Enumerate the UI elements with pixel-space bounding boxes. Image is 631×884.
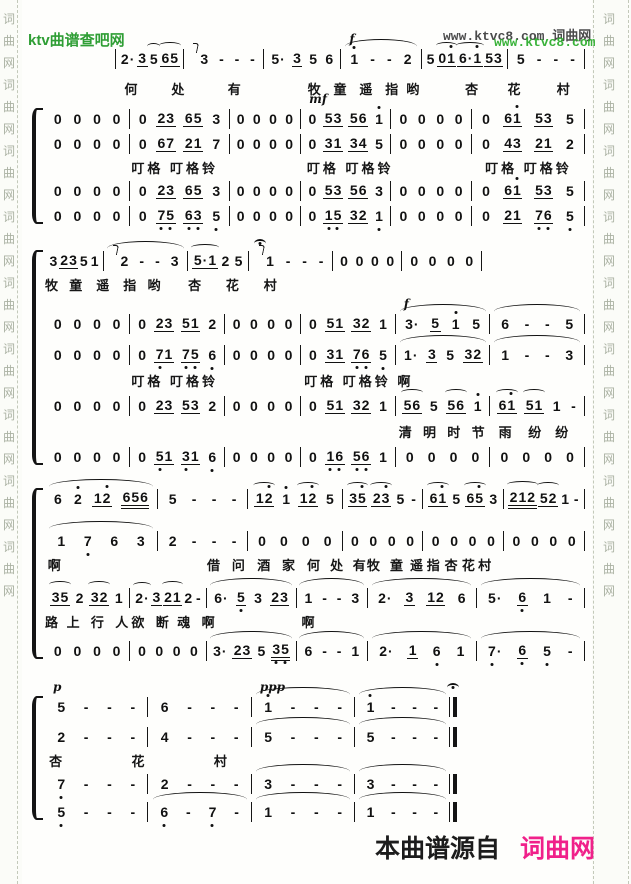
- note-char: 5: [281, 641, 290, 657]
- octave-dot-below: [521, 662, 524, 665]
- note-char: -: [186, 804, 192, 820]
- note-token: 5: [378, 347, 389, 363]
- note-char: 3: [280, 589, 289, 605]
- note-token: 0: [349, 533, 360, 549]
- note-token: 0: [251, 111, 262, 127]
- note-char: 3: [349, 490, 358, 506]
- note-char: 1: [333, 135, 342, 151]
- measure: 053563: [301, 181, 391, 201]
- measure: 5016·153: [422, 49, 508, 69]
- note-char: 5: [475, 490, 484, 506]
- lyric-syllable: 明: [423, 422, 439, 441]
- note-char: 0: [112, 398, 121, 414]
- note-char: 0: [431, 533, 440, 549]
- note-token: 3: [350, 590, 361, 606]
- note-token: 6: [456, 590, 467, 606]
- note-token: 3: [365, 776, 376, 792]
- note-char: 1: [193, 135, 202, 151]
- note-char: 6: [518, 589, 527, 605]
- note-token: -: [210, 533, 218, 549]
- final-barline: [453, 727, 457, 747]
- note-token: -: [389, 729, 397, 745]
- note-token: 5: [78, 253, 89, 269]
- note-token: -: [411, 804, 419, 820]
- note-token: 0: [481, 111, 492, 127]
- note-token: 0: [52, 449, 63, 465]
- note-char: -: [191, 491, 197, 507]
- note-char: -: [336, 590, 342, 606]
- note-token: 1: [263, 699, 274, 715]
- octave-dot-below: [377, 228, 380, 231]
- measure: 5---: [355, 727, 450, 747]
- note-token: 3: [151, 589, 162, 606]
- note-char: -: [83, 776, 89, 792]
- note-token: -: [186, 699, 194, 715]
- note-token: 23: [232, 642, 252, 659]
- note-char: 1: [501, 347, 510, 363]
- note-char: 3: [333, 182, 342, 198]
- note-char: 6: [504, 110, 513, 126]
- note-token: 63: [183, 207, 203, 224]
- note-char: 2: [436, 589, 445, 605]
- note-token: 5·1: [192, 252, 217, 269]
- note-char: 0: [436, 136, 445, 152]
- note-char: 0: [236, 136, 245, 152]
- note-token: -: [232, 699, 240, 715]
- note-char: 1: [534, 397, 543, 413]
- note-char: 5: [264, 729, 273, 745]
- note-char: 0: [405, 449, 414, 465]
- note-token: 31: [181, 448, 201, 465]
- note-row: p5---6---ppp1---1---: [45, 694, 457, 719]
- measure: 1·3532: [396, 345, 491, 365]
- note-char: 3: [90, 589, 99, 605]
- note-token: 0: [283, 449, 294, 465]
- note-char: 7: [182, 346, 191, 362]
- note-char: 1: [326, 448, 335, 464]
- note-char: 6: [498, 397, 507, 413]
- note-char: 3: [242, 642, 251, 658]
- note-token: 21: [534, 135, 554, 152]
- note-token: 0: [404, 449, 415, 465]
- note-token: -: [335, 590, 343, 606]
- measure: 0000: [391, 206, 472, 226]
- note-char: 1: [366, 699, 375, 715]
- note-char: -: [231, 533, 237, 549]
- octave-dot-below: [355, 468, 358, 471]
- measure: 0000: [490, 447, 585, 467]
- note-token: 0: [566, 533, 577, 549]
- note-token: 0: [548, 533, 559, 549]
- note-token: 5: [430, 315, 441, 332]
- note-token: 0: [307, 111, 318, 127]
- measure: 352321: [45, 588, 130, 608]
- tie-arc: [162, 581, 184, 588]
- lyric-syllable: 村: [214, 751, 230, 770]
- lyrics-row: 何处有牧童遥指哟杏花村: [115, 77, 585, 99]
- note-char: 5: [326, 315, 335, 331]
- octave-dot-below: [546, 227, 549, 230]
- note-token: 0: [284, 208, 295, 224]
- note-token: 0: [266, 398, 277, 414]
- measure: ppp1---: [252, 697, 355, 717]
- octave-dot-below: [158, 468, 161, 471]
- note-token: 65: [160, 50, 180, 67]
- note-token: 23: [270, 589, 290, 606]
- note-token: 5: [374, 136, 385, 152]
- measure: 0000: [333, 251, 402, 271]
- note-token: 56: [446, 397, 466, 414]
- measure: 565561: [396, 396, 491, 416]
- note-char: ·: [144, 590, 150, 606]
- lyric-syllable: 童: [390, 555, 406, 574]
- note-char: 0: [399, 208, 408, 224]
- note-char: ·: [280, 51, 286, 67]
- note-char: 0: [252, 183, 261, 199]
- note-token: 53: [323, 182, 343, 199]
- slur-arc: [400, 304, 486, 313]
- note-char: 0: [73, 347, 82, 363]
- note-char: 3: [352, 397, 361, 413]
- note-char: 3: [138, 50, 147, 66]
- note-char: 0: [138, 111, 147, 127]
- note-token: -: [82, 804, 90, 820]
- note-char: 6: [543, 207, 552, 223]
- note-token: -: [186, 776, 194, 792]
- slur-arc: [494, 304, 580, 313]
- note-token: 5: [256, 643, 267, 659]
- note-char: 5: [525, 397, 534, 413]
- note-char: 5: [352, 448, 361, 464]
- dynamic-marking: p: [53, 680, 61, 694]
- note-char: ·: [221, 643, 227, 659]
- octave-dot-below: [338, 468, 341, 471]
- note-char: 0: [138, 136, 147, 152]
- note-char: 0: [512, 533, 521, 549]
- note-char: 6: [501, 316, 510, 332]
- octave-dot-below: [184, 468, 187, 471]
- note-token: 0: [307, 136, 318, 152]
- note-token: 6: [431, 643, 442, 659]
- note-row: 000000003·235356--12·1617·65-: [45, 638, 585, 663]
- octave-dot-below: [275, 661, 278, 664]
- note-char: 5: [349, 110, 358, 126]
- octave-dot-below: [60, 824, 63, 827]
- note-char: 2: [60, 252, 69, 268]
- note-char: 1: [324, 207, 333, 223]
- note-char: 0: [250, 347, 259, 363]
- note-token: 0: [453, 208, 464, 224]
- measure: 1---: [249, 251, 333, 271]
- note-char: 2: [535, 135, 544, 151]
- note-char: 0: [284, 347, 293, 363]
- measure: 1---: [355, 802, 450, 822]
- note-char: 0: [155, 643, 164, 659]
- note-token: 0: [171, 643, 182, 659]
- note-row: 2·35653---5·356f1--25016·1535---: [115, 46, 585, 71]
- note-token: 23: [156, 182, 176, 199]
- note-char: -: [234, 51, 240, 67]
- note-char: ·: [412, 347, 418, 363]
- note-token: 61: [503, 182, 523, 199]
- note-token: 0: [249, 316, 260, 332]
- note-token: 3: [191, 51, 210, 67]
- note-char: 5: [57, 804, 66, 820]
- note-token: 0: [268, 183, 279, 199]
- note-char: -: [567, 643, 573, 659]
- note-token: 0: [453, 111, 464, 127]
- note-token: 56: [351, 448, 371, 465]
- note-row: 323512--35·1251---00000000: [45, 248, 482, 273]
- note-char: 1: [513, 207, 522, 223]
- note-char: 1: [375, 111, 384, 127]
- note-char: 7: [155, 346, 164, 362]
- slur-arc: [299, 578, 364, 587]
- note-token: 0: [416, 208, 427, 224]
- lyric-syllable: 何: [124, 79, 140, 98]
- measure: 1--3: [297, 588, 369, 608]
- measure: 3---: [355, 774, 450, 794]
- note-char: -: [233, 699, 239, 715]
- note-token: 0: [92, 183, 103, 199]
- octave-dot-below: [538, 227, 541, 230]
- note-token: 2: [159, 776, 170, 792]
- note-char: 0: [454, 136, 463, 152]
- note-char: 0: [406, 533, 415, 549]
- note-token: -: [138, 253, 146, 269]
- lyric-syllable: 叮格 叮格铃: [131, 371, 218, 390]
- note-char: 0: [340, 253, 349, 269]
- tie-arc: [464, 482, 486, 489]
- note-char: 1: [379, 316, 388, 332]
- note-char: 0: [73, 316, 82, 332]
- note-token: 0: [426, 449, 437, 465]
- tie-arc: [297, 482, 319, 489]
- octave-dot-below: [327, 227, 330, 230]
- measure: 061535: [472, 109, 585, 129]
- note-char: 1: [366, 804, 375, 820]
- note-char: 0: [436, 111, 445, 127]
- note-token: -: [321, 643, 329, 659]
- note-char: 5: [237, 589, 246, 605]
- note-char: 2: [308, 490, 317, 506]
- note-token: 5: [542, 643, 553, 659]
- note-token: 51: [325, 397, 345, 414]
- note-char: -: [545, 316, 551, 332]
- note-token: 51: [181, 315, 201, 332]
- note-token: 31: [325, 346, 345, 363]
- footer-brand-link[interactable]: 词曲网: [520, 835, 595, 863]
- lyric-syllable: 指: [427, 555, 443, 574]
- note-char: 7: [488, 643, 497, 659]
- note-char: 1: [351, 643, 360, 659]
- measure: 5---: [252, 727, 355, 747]
- note-token: 2·: [378, 643, 394, 659]
- note-token: 1: [500, 347, 511, 363]
- note-token: 0: [137, 208, 148, 224]
- note-char: 2: [504, 207, 513, 223]
- lyric-syllable: 清: [399, 422, 415, 441]
- note-char: 2: [271, 589, 280, 605]
- note-char: 1: [172, 589, 181, 605]
- octave-dot-above: [454, 311, 457, 314]
- note-token: 5: [263, 729, 274, 745]
- note-char: 0: [112, 449, 121, 465]
- note-token: 12: [298, 490, 318, 507]
- note-token: -: [233, 51, 241, 67]
- lyric-syllable: 花: [462, 555, 478, 574]
- note-token: 5: [167, 491, 178, 507]
- note-char: -: [390, 729, 396, 745]
- note-token: 0: [257, 533, 268, 549]
- note-token: 0: [92, 316, 103, 332]
- note-char: -: [211, 533, 217, 549]
- note-token: 0: [427, 253, 438, 269]
- note-token: 5: [515, 51, 526, 67]
- note-token: 5: [56, 804, 67, 820]
- note-token: 0: [511, 533, 522, 549]
- measure: 0000: [391, 109, 472, 129]
- note-token: 53: [534, 110, 554, 127]
- note-char: 7: [57, 776, 66, 792]
- note-char: 1: [513, 182, 522, 198]
- note-token: -: [209, 776, 217, 792]
- score-system: 323512--35·1251---00000000牧童遥指哟杏花村000002…: [45, 248, 585, 469]
- octave-dot-below: [196, 227, 199, 230]
- note-token: 3: [253, 590, 264, 606]
- note-char: 0: [112, 183, 121, 199]
- note-char: 1: [299, 490, 308, 506]
- note-char: 0: [450, 533, 459, 549]
- note-char: 0: [482, 136, 491, 152]
- note-char: 0: [487, 533, 496, 549]
- note-token: 23: [371, 490, 391, 507]
- note-token: 3: [564, 347, 575, 363]
- slur-arc: [107, 241, 184, 250]
- note-token: 21: [503, 207, 523, 224]
- note-token: -: [411, 776, 419, 792]
- note-token: -: [194, 590, 202, 606]
- note-char: 0: [417, 208, 426, 224]
- measure: 3---: [184, 49, 264, 69]
- lyric-syllable: 杏: [445, 555, 461, 574]
- note-token: 52: [538, 490, 558, 507]
- note-token: -: [230, 533, 238, 549]
- note-char: 0: [399, 136, 408, 152]
- note-char: 6: [208, 347, 217, 363]
- measure: 1---: [252, 802, 355, 822]
- note-char: 5: [182, 315, 191, 331]
- note-char: -: [233, 729, 239, 745]
- note-token: 0: [72, 449, 83, 465]
- note-token: 0: [308, 398, 319, 414]
- note-char: 0: [250, 316, 259, 332]
- note-char: 0: [53, 643, 62, 659]
- note-char: 0: [285, 136, 294, 152]
- note-char: 2: [184, 135, 193, 151]
- note-char: 0: [252, 208, 261, 224]
- note-token: 61: [503, 110, 523, 127]
- note-char: 2: [184, 590, 193, 606]
- note-char: 0: [280, 533, 289, 549]
- note-char: 7: [212, 136, 221, 152]
- note-token: 0: [266, 347, 277, 363]
- note-char: -: [195, 590, 201, 606]
- note-char: 0: [308, 183, 317, 199]
- note-char: 7: [208, 804, 217, 820]
- note-token: 23: [156, 110, 176, 127]
- note-char: 2: [208, 316, 217, 332]
- note-token: 5: [233, 253, 244, 269]
- measure: 023512: [130, 314, 225, 334]
- lyric-syllable: 啊: [302, 612, 318, 631]
- note-char: 7: [83, 533, 92, 549]
- note-token: 0: [283, 398, 294, 414]
- note-token: 6: [324, 51, 335, 67]
- measure: 2---: [45, 727, 148, 747]
- note-token: 0: [398, 111, 409, 127]
- note-char: -: [322, 590, 328, 606]
- note-char: 2: [168, 533, 177, 549]
- note-token: -: [336, 699, 344, 715]
- note-token: -: [289, 729, 297, 745]
- lyric-syllable: 啊: [48, 555, 64, 574]
- note-token: 1: [378, 449, 389, 465]
- note-token: -: [312, 804, 320, 820]
- note-char: 0: [53, 449, 62, 465]
- note-token: 0: [435, 111, 446, 127]
- note-token: -: [209, 729, 217, 745]
- grace-note-ornament: [191, 43, 199, 53]
- note-token: 0: [529, 533, 540, 549]
- measure: 6-7-: [148, 802, 251, 822]
- note-char: 5: [447, 397, 456, 413]
- note-char: 1: [304, 590, 313, 606]
- note-token: 1: [349, 51, 360, 67]
- note-char: 1: [451, 316, 460, 332]
- note-char: 1: [438, 490, 447, 506]
- note-token: 0: [416, 183, 427, 199]
- measure: 0000: [230, 181, 302, 201]
- octave-dot-below: [546, 663, 549, 666]
- note-char: -: [337, 729, 343, 745]
- note-char: 6: [110, 533, 119, 549]
- measure: 031765: [301, 345, 396, 365]
- note-char: 1: [335, 346, 344, 362]
- note-token: -: [369, 51, 377, 67]
- note-char: -: [83, 729, 89, 745]
- octave-dot-below: [364, 468, 367, 471]
- note-char: -: [571, 398, 577, 414]
- note-token: -: [106, 699, 114, 715]
- note-char: 0: [232, 449, 241, 465]
- note-char: 1: [282, 491, 291, 507]
- lyric-syllable: 借: [207, 555, 223, 574]
- note-token: 0: [137, 347, 148, 363]
- note-token: 1·: [403, 347, 419, 363]
- note-token: 32: [351, 397, 371, 414]
- note-token: 2: [207, 398, 218, 414]
- note-char: -: [83, 804, 89, 820]
- note-char: 2: [509, 489, 518, 505]
- note-token: 0: [308, 347, 319, 363]
- note-token: 53: [484, 50, 504, 67]
- note-char: 7: [352, 346, 361, 362]
- note-token: 0: [398, 183, 409, 199]
- note-char: 5: [212, 208, 221, 224]
- note-char: 5: [324, 110, 333, 126]
- note-token: 0: [251, 208, 262, 224]
